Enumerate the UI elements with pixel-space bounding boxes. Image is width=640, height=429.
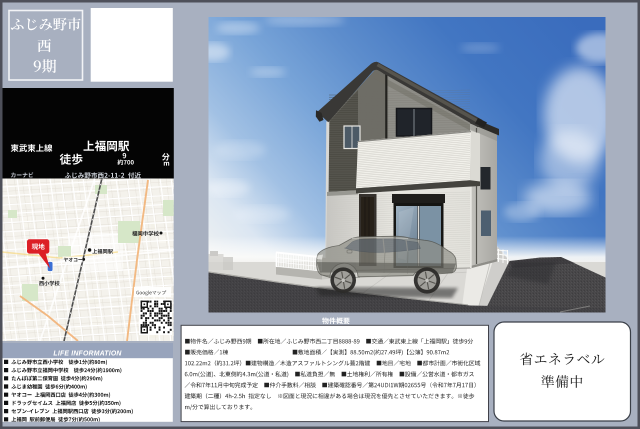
svg-text:LIFE INFORMATION: LIFE INFORMATION <box>53 351 122 358</box>
